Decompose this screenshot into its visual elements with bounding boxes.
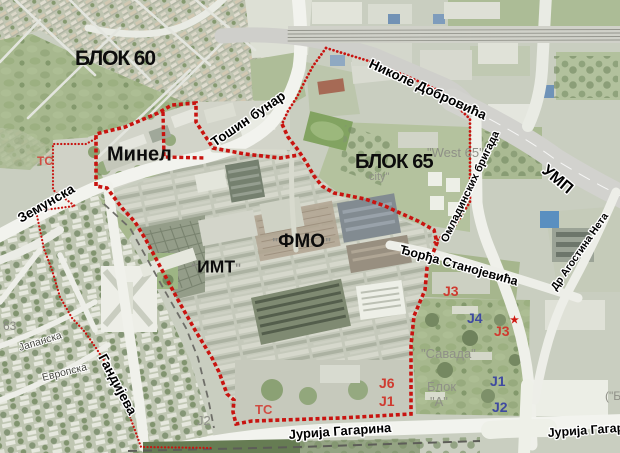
svg-text:Ј6: Ј6	[379, 375, 395, 391]
svg-text:"ФМО": "ФМО"	[272, 231, 331, 252]
svg-text:Ј3: Ј3	[494, 323, 510, 339]
svg-text:("Б: ("Б	[605, 389, 620, 403]
svg-text:Ј2: Ј2	[197, 413, 211, 428]
svg-text:"West 65": "West 65"	[427, 145, 484, 160]
svg-text:БЛОК 65: БЛОК 65	[355, 151, 434, 173]
svg-text:Минел: Минел	[107, 144, 172, 166]
svg-text:★: ★	[510, 315, 519, 326]
svg-text:"А": "А"	[430, 394, 448, 409]
svg-text:Ј1: Ј1	[490, 373, 506, 389]
svg-text:Блок: Блок	[427, 379, 456, 394]
svg-text:Ј1: Ј1	[379, 393, 395, 409]
svg-text:Ј2: Ј2	[492, 399, 508, 415]
svg-text:Ј4: Ј4	[467, 310, 483, 326]
svg-text:Ј3: Ј3	[443, 283, 459, 299]
svg-text:"Савада": "Савада"	[421, 346, 476, 361]
svg-text:ТС: ТС	[255, 402, 273, 417]
svg-text:"ИМТ": "ИМТ"	[191, 257, 241, 277]
svg-text:city": city"	[369, 171, 390, 183]
svg-text:ТС: ТС	[37, 154, 53, 168]
svg-text:БЛОК 60: БЛОК 60	[75, 47, 155, 70]
svg-text:63: 63	[3, 319, 17, 333]
